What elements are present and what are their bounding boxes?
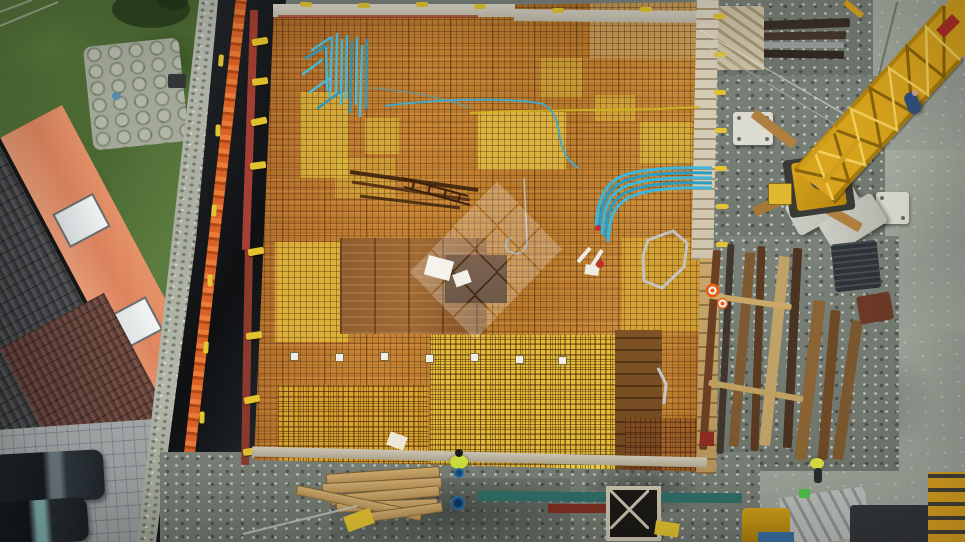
fence-clamp [218,54,224,66]
edge-clamp [714,52,726,57]
red-box [700,432,714,446]
green-mark [799,489,810,498]
edge-clamp [715,166,727,171]
yellow-machine [928,472,965,542]
edge-clamp [715,128,727,133]
worker-blue-head [912,90,918,96]
edge-clamp [416,2,428,7]
spacer-marker [425,354,434,363]
edge-clamp [474,4,486,9]
edge-clamp [300,2,312,8]
fence-clamp [208,275,213,287]
parked-car [0,449,105,505]
garden-stone-path [83,37,189,150]
traffic-cone [705,283,720,298]
red-marker [596,260,604,268]
edge-clamp [358,3,370,8]
blue-bucket [451,496,465,510]
edge-red-rail [278,15,478,18]
spacer-marker [558,356,567,365]
parked-car [0,497,89,542]
crane-winch [810,168,832,190]
blue-pallet [758,532,794,542]
shaft-opening [606,486,661,541]
aerial-construction-photo [0,0,965,542]
garden-toy [112,92,121,100]
edge-clamp [713,14,725,19]
formwork-deck [240,0,720,500]
blue-bucket [454,468,464,478]
shaft-cross-brace [610,490,649,529]
edge-clamp [716,204,728,209]
fence-clamp [203,341,209,353]
edge-clamp [716,242,728,247]
steel-beam [750,42,844,48]
spacer-marker [470,353,479,362]
fence-clamp [211,204,217,216]
spacer-marker [335,353,344,362]
garden-furniture [168,74,186,88]
worker-deck-head [455,449,463,457]
worker-yard-legs [814,468,822,483]
spacer-marker [290,352,299,361]
worker-deck-vest [450,455,468,469]
edge-clamp [714,90,726,95]
deck-top-edge-beam [514,9,706,23]
spacer-marker [515,355,524,364]
edge-clamp [640,7,652,12]
rusty-machine [856,291,894,324]
edge-clamp [552,8,564,13]
generator-box [831,240,882,293]
fence-clamp [199,411,204,423]
spacer-marker [380,352,389,361]
crane-cab [768,183,792,205]
traffic-cone [717,298,728,309]
fence-clamp [215,124,220,136]
dark-equipment [850,505,930,542]
